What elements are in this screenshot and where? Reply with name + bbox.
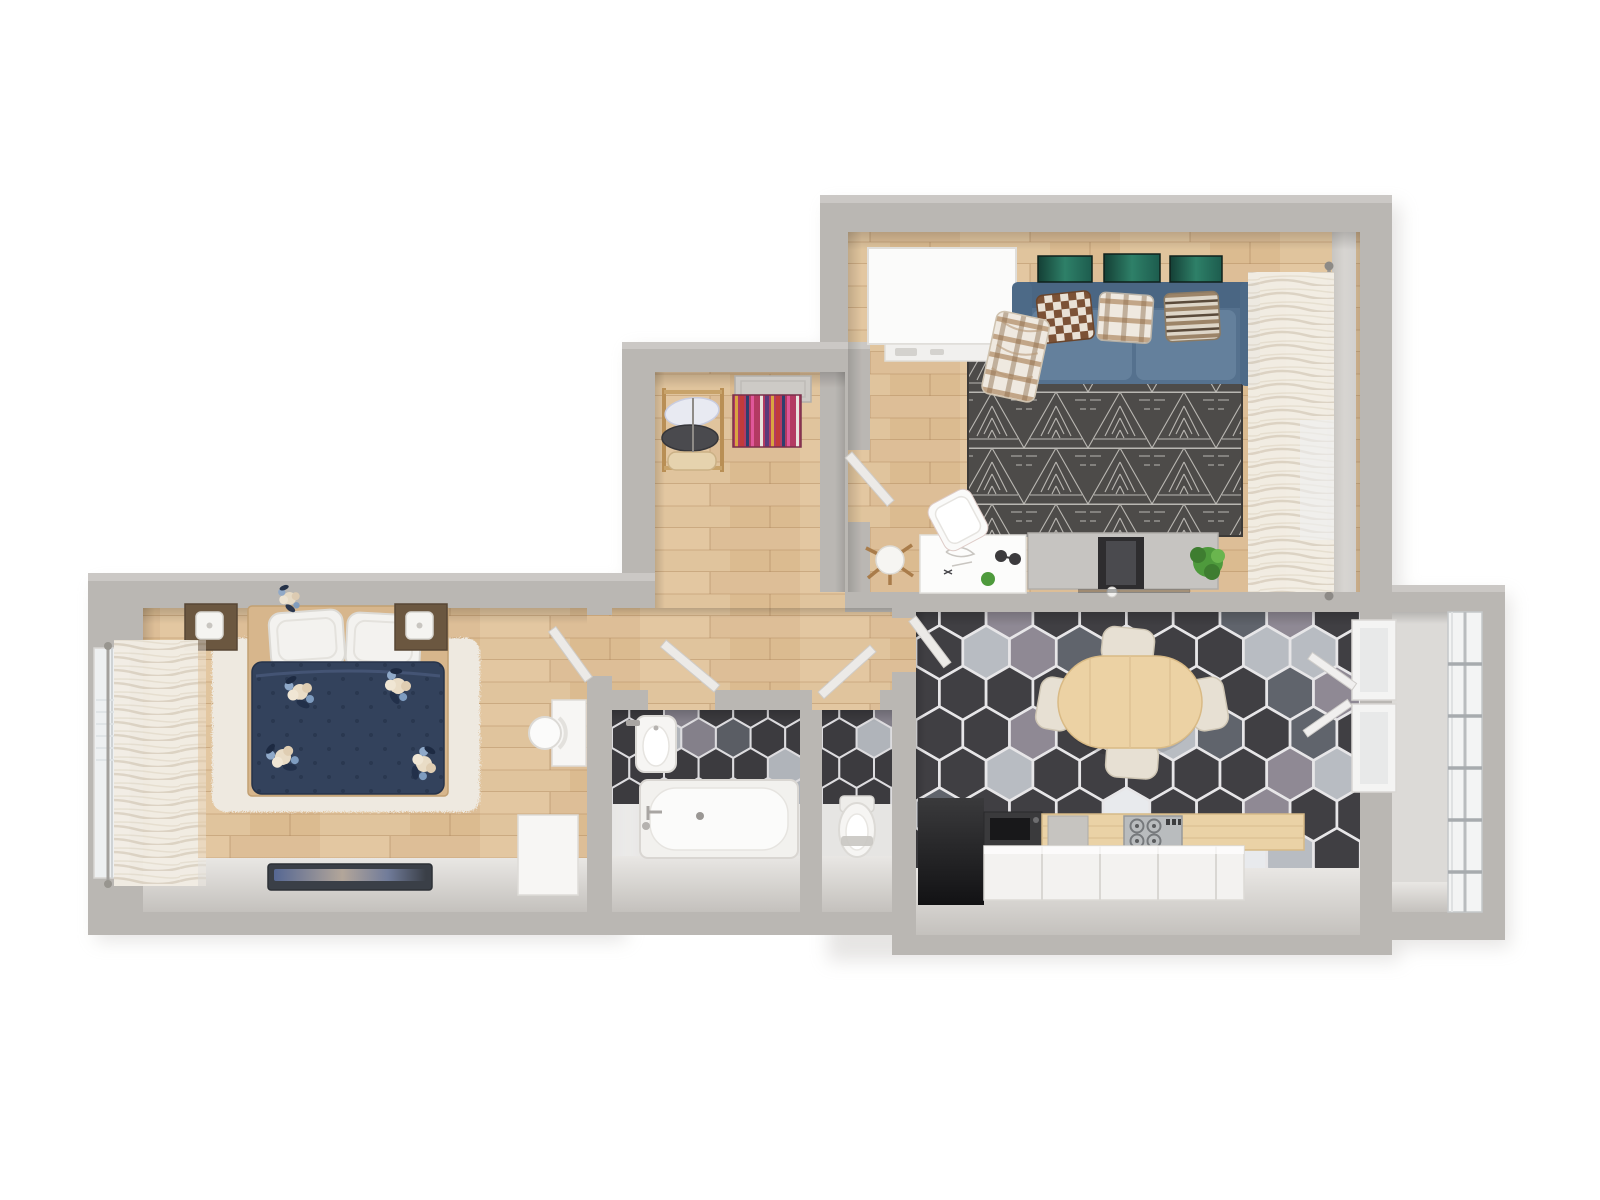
wall-balcony-right: [1482, 585, 1505, 940]
counter-dark: [984, 812, 1042, 848]
floor-plan-render: [0, 0, 1600, 1200]
counter-stone-section: [1048, 816, 1088, 847]
artwork-3: [1170, 256, 1222, 282]
wc: [839, 796, 875, 857]
wall-kitchen-left-stub: [892, 612, 916, 618]
counter-wood-worktop: [1042, 814, 1304, 850]
wall-bath-top-a: [612, 690, 648, 710]
wall-bath-bottom: [612, 912, 916, 935]
bathtub-drain: [696, 812, 704, 820]
wall-balcony-bottom: [1392, 912, 1505, 940]
bedroom-desk-chair: [529, 717, 561, 749]
bedroom-dresser: [518, 815, 578, 895]
bedroom-window: [94, 640, 206, 888]
bathroom-door-threshold: [648, 690, 715, 710]
wall-living-kitchen-divider: [845, 592, 1360, 612]
wall-hall-left: [622, 342, 655, 573]
wall-kitchen-bottom: [892, 935, 1392, 955]
living-window: [1248, 262, 1334, 601]
dining-table: [1058, 656, 1202, 748]
wall-bedroom-bottom: [88, 912, 612, 935]
balcony-glazing: [1448, 612, 1482, 912]
basin-faucet: [626, 720, 640, 726]
wall-living-right: [1360, 195, 1392, 940]
rack-basket: [668, 452, 716, 470]
sofa-cushion-plaid: [1097, 292, 1154, 344]
artwork-2: [1104, 254, 1160, 282]
wall-bath-top-b: [715, 690, 812, 710]
bathtub: [640, 780, 798, 858]
desk-plant: [981, 572, 995, 586]
corridor-floor: [612, 608, 892, 690]
bed-pillow-left: [268, 609, 346, 670]
wall-bedroom-right-stub: [587, 608, 612, 615]
utility-shaft: [918, 798, 984, 905]
bathroom-south-face: [612, 856, 800, 912]
tv-stand: [1028, 533, 1218, 597]
wall-bathroom-left: [587, 676, 612, 912]
balcony: [1448, 612, 1482, 912]
living-desk: [920, 535, 1026, 593]
nightstand-right: [395, 604, 447, 650]
wall-bath-wc-divider: [800, 710, 822, 912]
artwork-1: [1038, 256, 1092, 282]
toilet-seat-band: [841, 836, 873, 846]
hanging-jacket: [662, 425, 718, 451]
toilet: [839, 796, 875, 857]
bedroom-wall-tv: [268, 864, 432, 890]
balcony-south-face: [1392, 882, 1448, 912]
gas-stove: [1124, 816, 1182, 849]
wall-kitchen-left: [892, 672, 916, 912]
wall-artworks: [1038, 254, 1222, 282]
bedroom-door-threshold: [587, 615, 612, 676]
wc-south-face: [822, 856, 892, 912]
hallway-rug: [733, 395, 801, 447]
sofa-cushion-striped: [1164, 291, 1220, 342]
balcony-floor: [1392, 612, 1448, 912]
counter-white-cabinets: [984, 846, 1244, 900]
